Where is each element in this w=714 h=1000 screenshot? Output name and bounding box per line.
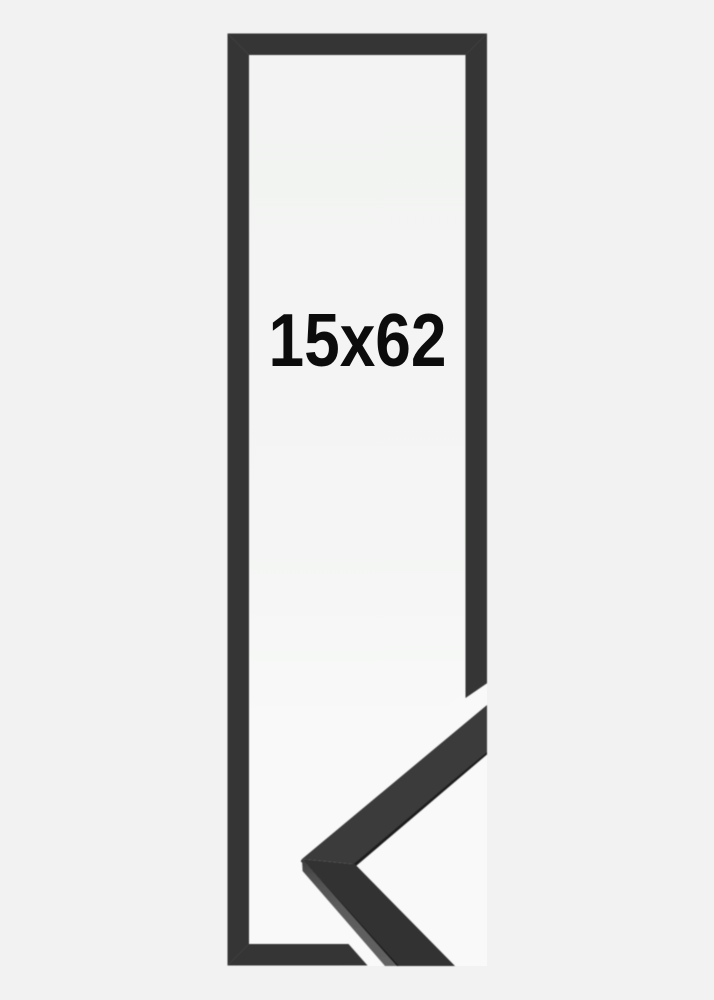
svg-text:15x62: 15x62 — [269, 298, 447, 382]
